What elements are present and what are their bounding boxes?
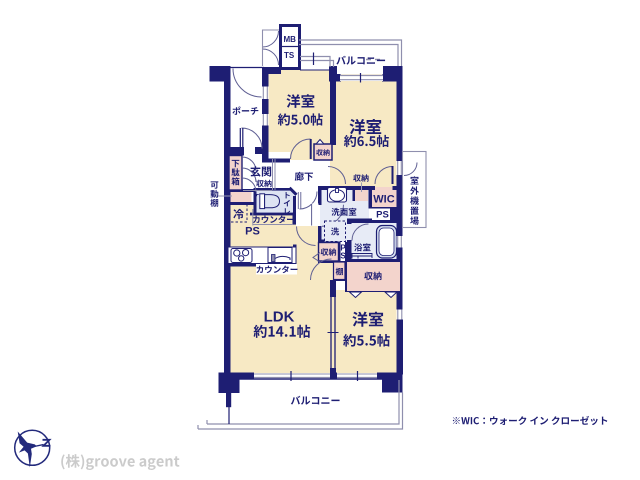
svg-text:WIC: WIC bbox=[373, 194, 394, 206]
svg-text:S: S bbox=[340, 252, 346, 261]
svg-text:PS: PS bbox=[376, 210, 389, 221]
svg-text:TS: TS bbox=[284, 51, 295, 60]
svg-text:MB: MB bbox=[284, 35, 297, 44]
svg-text:PS: PS bbox=[245, 226, 260, 238]
svg-text:LDK: LDK bbox=[264, 309, 295, 326]
